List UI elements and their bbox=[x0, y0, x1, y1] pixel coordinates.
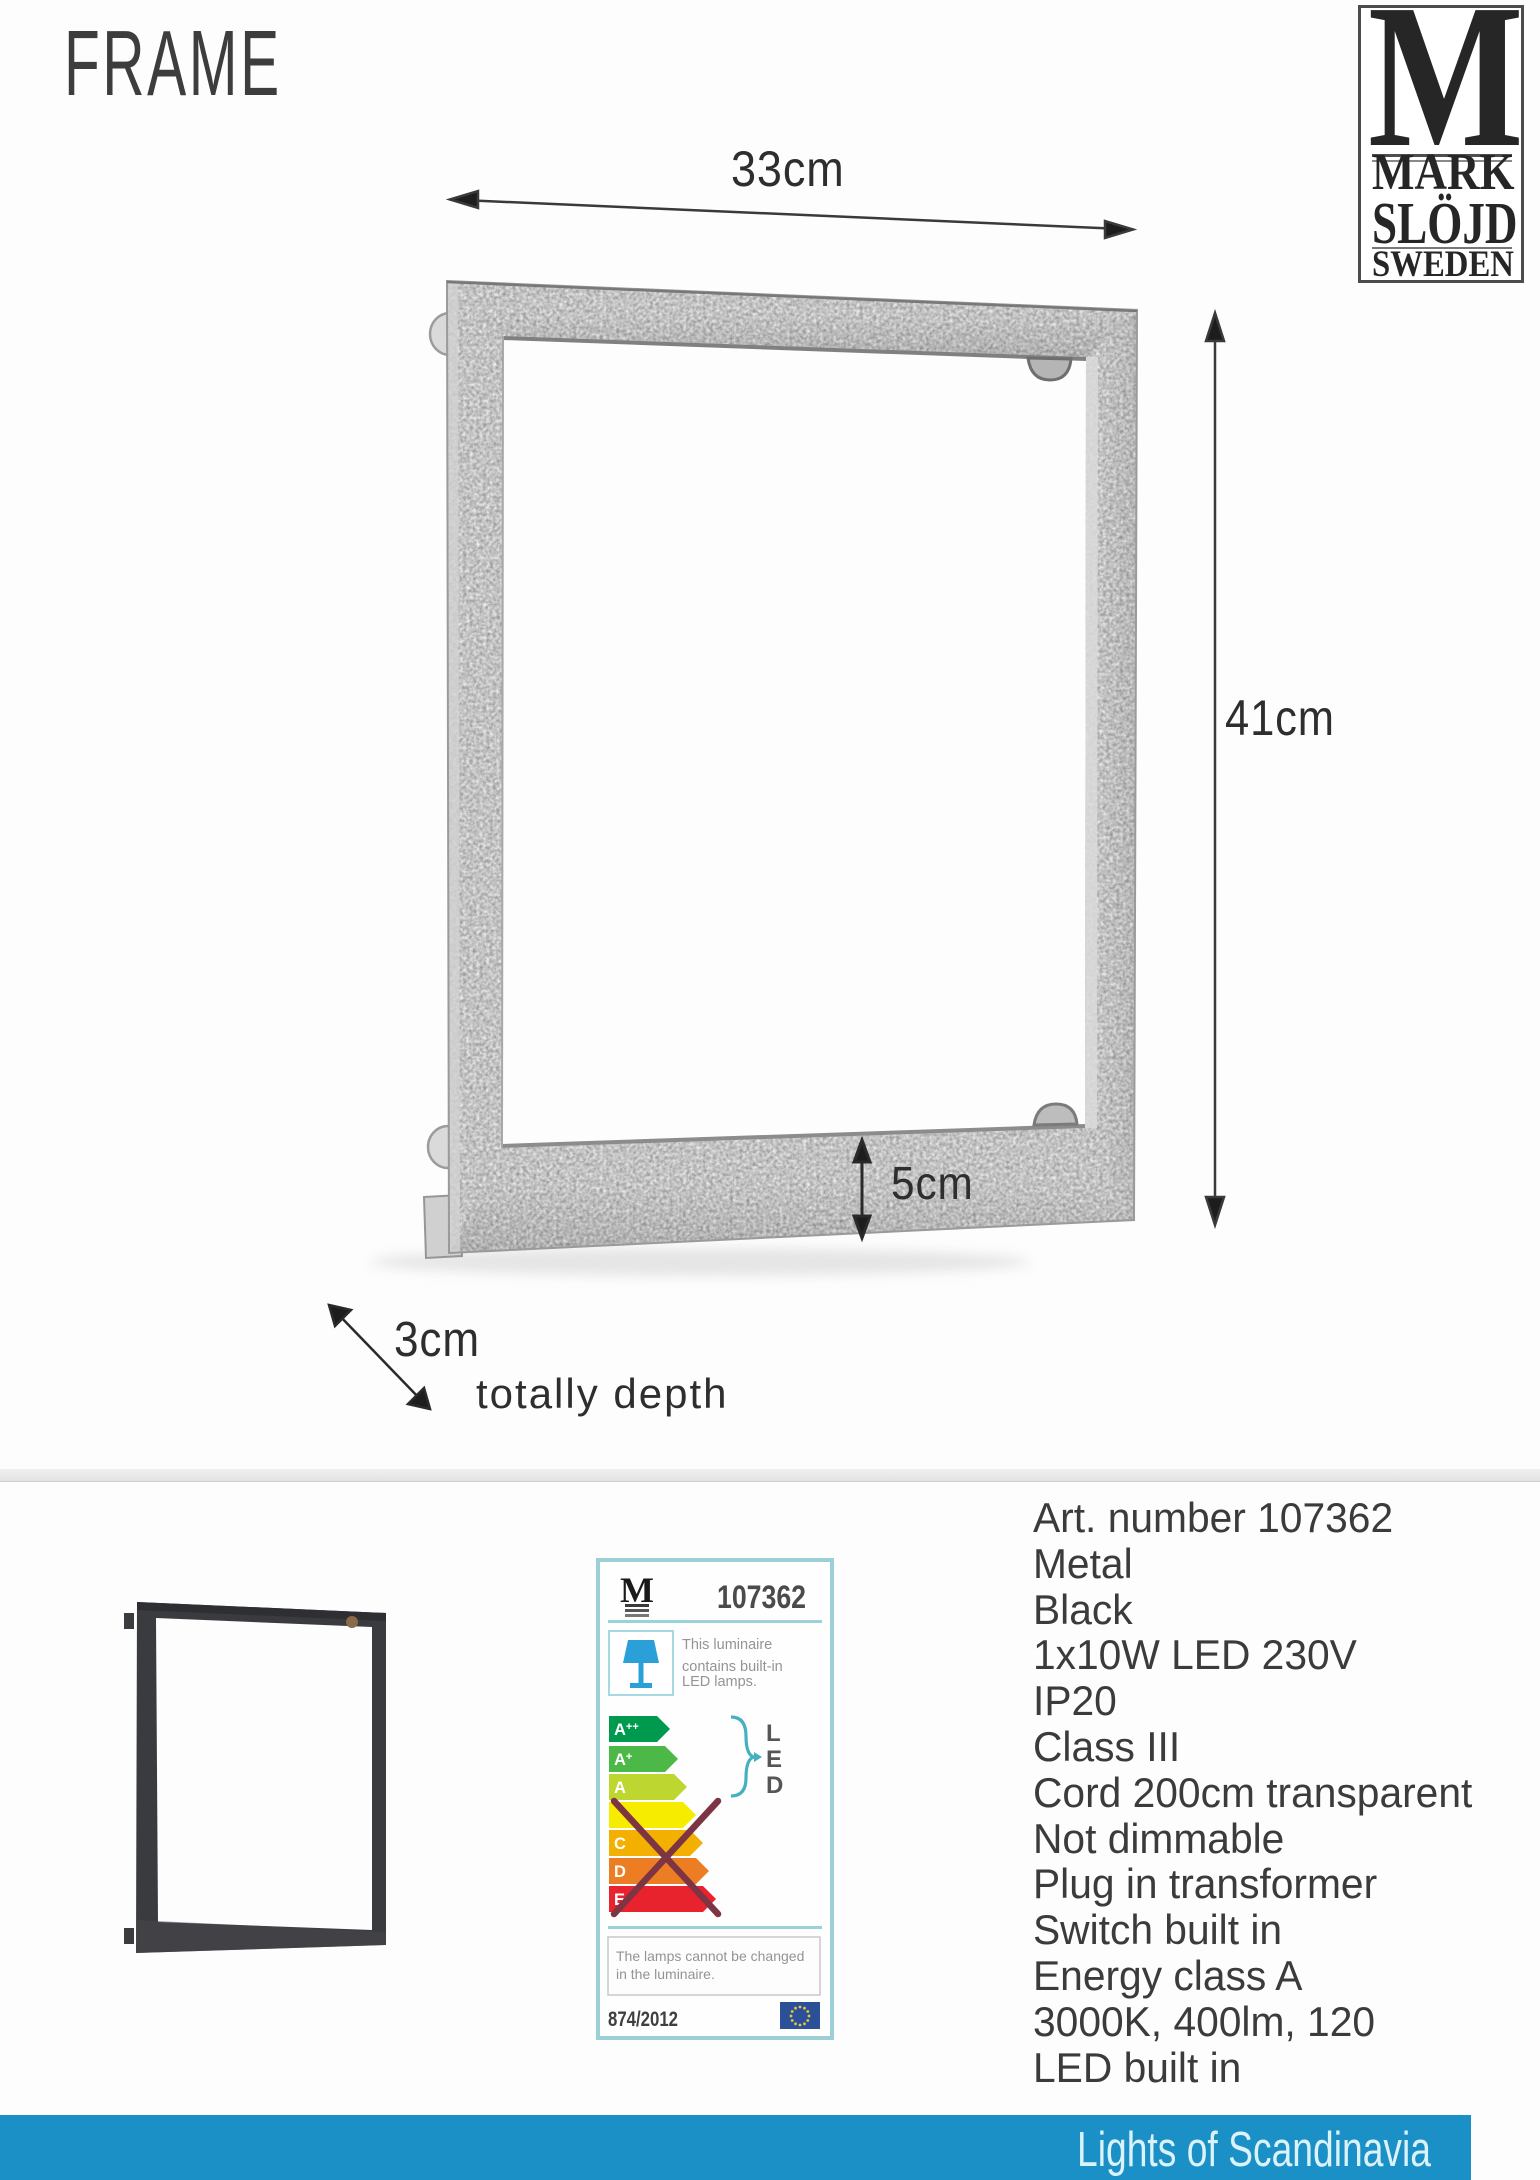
svg-text:in the luminaire.: in the luminaire. bbox=[616, 1966, 715, 1982]
svg-text:L: L bbox=[766, 1720, 781, 1747]
svg-text:This luminaire: This luminaire bbox=[682, 1637, 772, 1653]
svg-text:D: D bbox=[766, 1772, 783, 1799]
svg-text:E: E bbox=[766, 1746, 782, 1773]
svg-text:contains built-in: contains built-in bbox=[682, 1659, 783, 1675]
svg-text:874/2012: 874/2012 bbox=[608, 2008, 678, 2031]
svg-text:LED lamps.: LED lamps. bbox=[682, 1674, 757, 1690]
svg-text:A: A bbox=[614, 1779, 626, 1797]
svg-text:The lamps cannot be changed: The lamps cannot be changed bbox=[616, 1948, 804, 1964]
svg-text:C: C bbox=[614, 1835, 626, 1853]
svg-text:107362: 107362 bbox=[717, 1579, 806, 1615]
svg-text:D: D bbox=[614, 1863, 626, 1881]
